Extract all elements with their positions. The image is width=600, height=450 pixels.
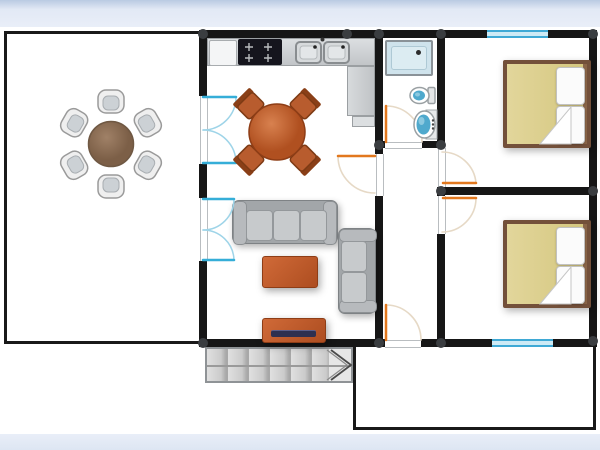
background-band-bottom bbox=[0, 434, 600, 450]
kitchen-round-table bbox=[249, 104, 305, 160]
terrace-outline bbox=[353, 345, 596, 430]
kitchen-chair bbox=[288, 87, 321, 120]
wash-basin bbox=[414, 110, 437, 139]
sofa-cushion bbox=[300, 210, 327, 241]
wall-joint-dot bbox=[374, 338, 384, 348]
wall-joint-dot bbox=[342, 29, 352, 39]
bed2-pillow bbox=[556, 227, 585, 265]
entrance-door-opening bbox=[385, 340, 421, 348]
window-bedroom1 bbox=[487, 30, 548, 38]
cooktop bbox=[238, 39, 282, 65]
shower-drain bbox=[416, 50, 421, 55]
door-bedroom1 bbox=[442, 152, 476, 183]
loveseat-2-seat bbox=[338, 228, 376, 314]
toilet bbox=[410, 88, 435, 104]
bedroom1-door-opening bbox=[438, 148, 446, 187]
tv-stand bbox=[262, 318, 326, 343]
wall-bottom-b bbox=[421, 339, 492, 347]
wall-joint-dot bbox=[436, 186, 446, 196]
bed-bedroom2 bbox=[503, 220, 591, 308]
staircase bbox=[205, 347, 353, 383]
door-living-to-hall bbox=[338, 156, 375, 193]
wall-joint-dot bbox=[588, 336, 598, 346]
shower bbox=[385, 40, 433, 76]
living-door-opening bbox=[376, 154, 384, 196]
kitchen-chair bbox=[232, 143, 265, 176]
sofa-3-seat bbox=[232, 200, 338, 244]
wall-joint-dot bbox=[436, 29, 446, 39]
background-band-top bbox=[0, 0, 600, 27]
kitchen-cabinet-white bbox=[209, 40, 237, 66]
door-bathroom bbox=[386, 106, 422, 142]
kitchen-counter-right bbox=[347, 66, 375, 116]
bed-bedroom1 bbox=[503, 60, 591, 148]
wall-left-c bbox=[199, 261, 207, 347]
window-bedroom2 bbox=[492, 339, 553, 347]
loveseat-cushion bbox=[341, 272, 367, 303]
shower-tray bbox=[391, 46, 427, 70]
bed2-pillow bbox=[556, 266, 585, 304]
wall-joint-dot bbox=[588, 29, 598, 39]
door-bedroom2 bbox=[442, 198, 476, 232]
bed1-pillow bbox=[556, 67, 585, 105]
coffee-table bbox=[262, 256, 318, 288]
wall-joint-dot bbox=[198, 29, 208, 39]
wall-joint-dot bbox=[436, 140, 446, 150]
wall-hall-bedrooms-a bbox=[437, 30, 445, 148]
door-entrance bbox=[386, 305, 421, 340]
bedroom2-door-opening bbox=[438, 196, 446, 234]
wall-joint-dot bbox=[588, 186, 598, 196]
kitchen-counter-end bbox=[352, 116, 375, 127]
wall-joint-dot bbox=[374, 140, 384, 150]
sofa-cushion bbox=[246, 210, 273, 241]
kitchen-table-set bbox=[232, 87, 321, 176]
kitchen-chair bbox=[232, 87, 265, 120]
wall-left-a bbox=[199, 30, 207, 96]
wall-joint-dot bbox=[198, 338, 208, 348]
stair-midline bbox=[207, 365, 351, 367]
wall-joint-dot bbox=[374, 29, 384, 39]
sofa-armrest-left bbox=[233, 201, 247, 245]
wall-living-hall-a bbox=[375, 30, 383, 154]
bathroom-door-opening bbox=[385, 142, 422, 149]
wall-bedroom-divider bbox=[441, 187, 597, 195]
floorplan-canvas bbox=[0, 0, 600, 450]
wall-living-hall-b bbox=[375, 196, 383, 347]
wall-left-b bbox=[199, 164, 207, 198]
kitchen-chair bbox=[288, 143, 321, 176]
sofa-cushion bbox=[273, 210, 300, 241]
bed1-pillow bbox=[556, 106, 585, 144]
french-door1-opening bbox=[200, 96, 208, 164]
wall-hall-bedrooms-c bbox=[437, 234, 445, 347]
room-patio bbox=[4, 31, 203, 344]
loveseat-cushion bbox=[341, 241, 367, 272]
wall-joint-dot bbox=[436, 338, 446, 348]
tv bbox=[271, 330, 316, 337]
french-door2-opening bbox=[200, 198, 208, 261]
